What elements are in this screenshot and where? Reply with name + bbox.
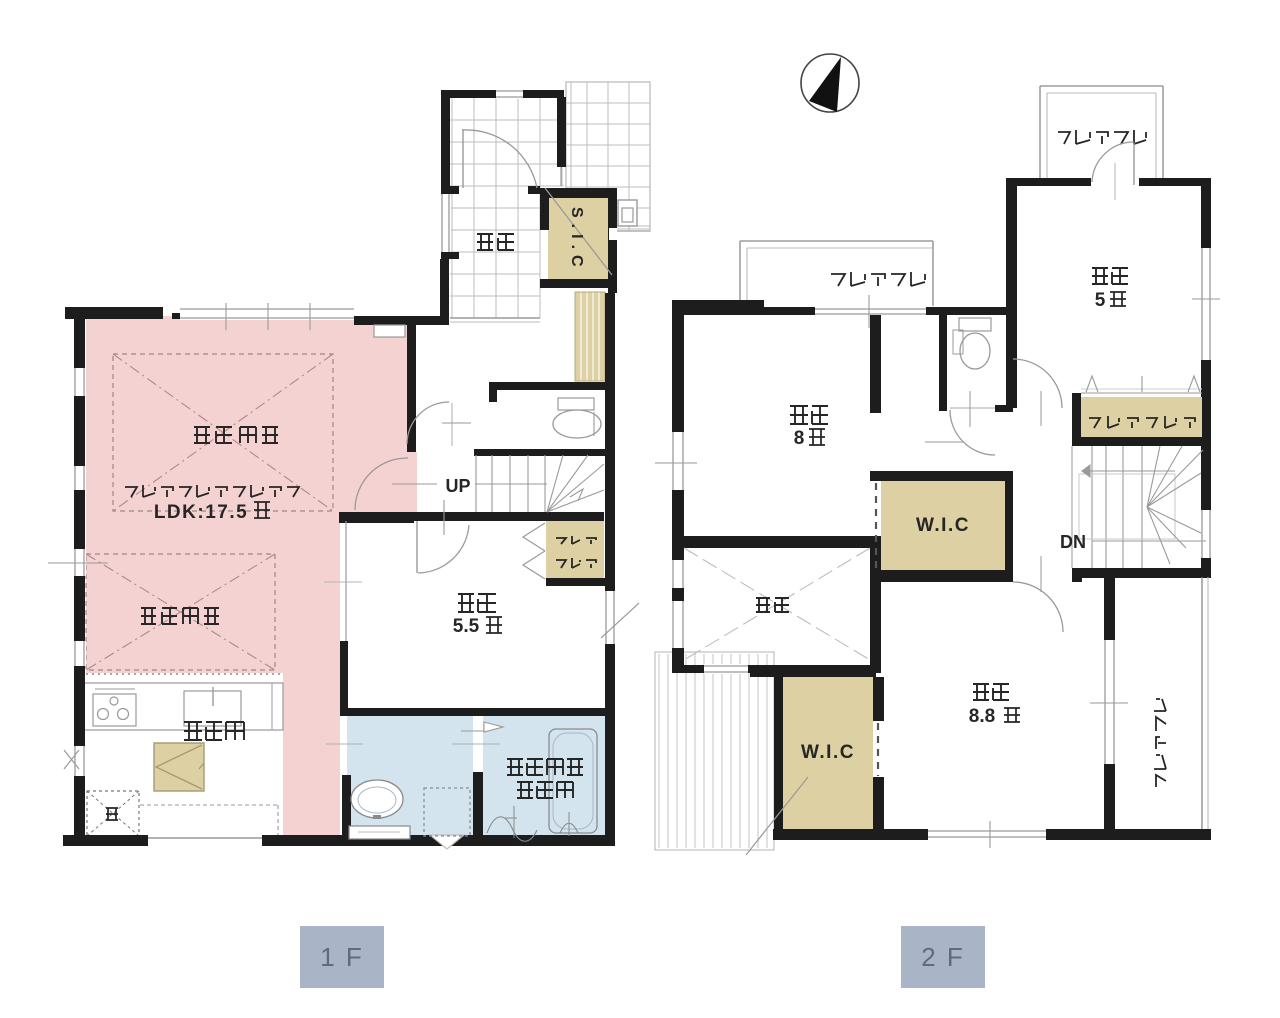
svg-text:1 F: 1 F [320, 942, 364, 972]
svg-text:S.I.C: S.I.C [568, 207, 585, 273]
svg-text:W.I.C: W.I.C [916, 515, 970, 536]
svg-text:8: 8 [794, 428, 805, 449]
svg-text:LDK:17.5: LDK:17.5 [154, 502, 248, 523]
svg-text:5: 5 [1095, 290, 1106, 311]
svg-text:DN: DN [1060, 532, 1086, 552]
svg-text:8.8: 8.8 [969, 706, 995, 727]
svg-text:W.I.C: W.I.C [801, 742, 855, 763]
svg-text:2 F: 2 F [921, 942, 965, 972]
svg-text:5.5: 5.5 [453, 616, 480, 637]
svg-text:UP: UP [445, 476, 470, 496]
